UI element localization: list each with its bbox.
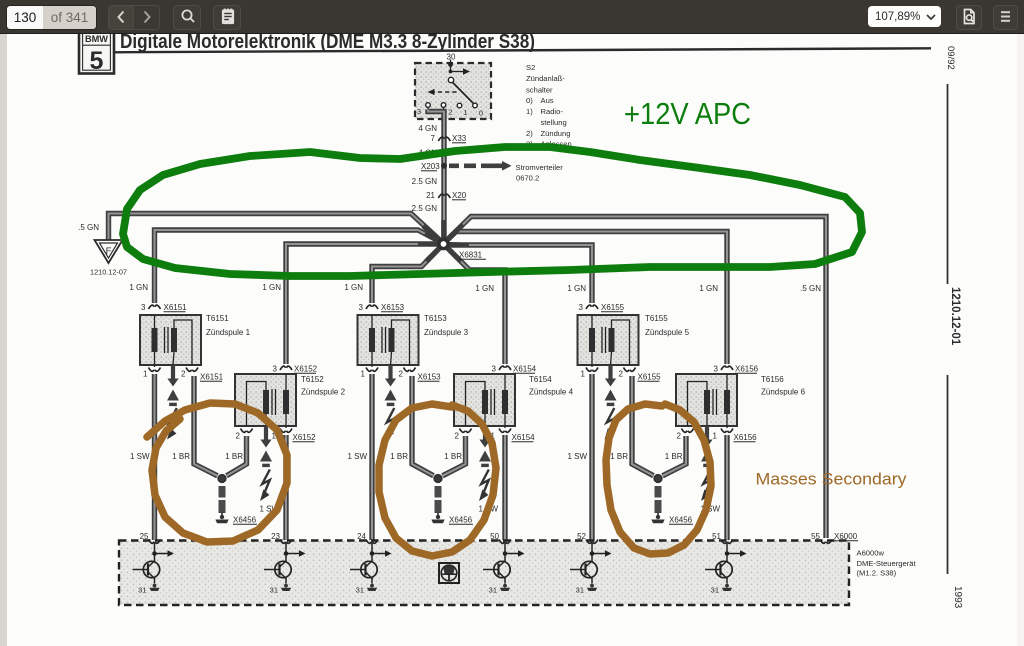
svg-text:(M1.2. S38): (M1.2. S38) (857, 569, 897, 578)
svg-text:X6156: X6156 (734, 433, 758, 442)
svg-text:1993: 1993 (952, 586, 963, 609)
svg-text:3: 3 (417, 107, 421, 116)
svg-text:1 SW: 1 SW (567, 452, 587, 461)
svg-text:1 BR: 1 BR (225, 452, 243, 461)
svg-text:31: 31 (576, 586, 584, 595)
svg-text:T6156: T6156 (761, 375, 784, 384)
svg-text:7: 7 (431, 134, 436, 143)
svg-text:2: 2 (619, 370, 624, 379)
svg-text:X6831: X6831 (459, 251, 483, 260)
svg-text:3: 3 (359, 303, 364, 312)
svg-text:Zündspule 6: Zündspule 6 (761, 388, 806, 397)
svg-text:1): 1) (526, 107, 533, 116)
svg-text:X6456: X6456 (449, 516, 473, 525)
svg-text:2: 2 (399, 370, 404, 379)
svg-text:24: 24 (357, 532, 366, 541)
svg-text:30: 30 (447, 53, 456, 62)
svg-text:1 BR: 1 BR (390, 452, 408, 461)
svg-text:2.5 GN: 2.5 GN (412, 204, 438, 213)
svg-text:T6151: T6151 (206, 314, 229, 323)
svg-text:1 GN: 1 GN (699, 284, 718, 293)
svg-text:Zündung: Zündung (541, 129, 571, 138)
svg-text:X6152: X6152 (294, 365, 318, 374)
svg-text:X6156: X6156 (735, 365, 759, 374)
svg-text:2: 2 (448, 108, 452, 117)
svg-text:Radio-: Radio- (541, 107, 564, 116)
svg-text:2): 2) (526, 129, 533, 138)
svg-text:1: 1 (143, 370, 148, 379)
svg-text:A6000w: A6000w (857, 549, 885, 558)
svg-text:1: 1 (361, 370, 366, 379)
svg-text:X20: X20 (452, 191, 467, 200)
svg-text:25: 25 (140, 532, 149, 541)
svg-text:1: 1 (581, 370, 586, 379)
svg-text:X6000: X6000 (834, 532, 858, 541)
svg-text:1: 1 (463, 108, 467, 117)
svg-text:2: 2 (181, 370, 186, 379)
svg-text:2: 2 (236, 432, 241, 441)
svg-text:X6152: X6152 (293, 433, 317, 442)
svg-text:X6155: X6155 (638, 373, 662, 382)
svg-text:X6456: X6456 (669, 516, 693, 525)
svg-text:stellung: stellung (541, 118, 567, 127)
svg-text:31: 31 (711, 586, 719, 595)
svg-text:S2: S2 (526, 63, 535, 72)
svg-text:Zündanlaß-: Zündanlaß- (526, 74, 565, 83)
svg-text:X6153: X6153 (381, 303, 405, 312)
svg-text:31: 31 (138, 586, 146, 595)
svg-text:T6155: T6155 (645, 314, 668, 323)
svg-text:0): 0) (526, 96, 533, 105)
svg-text:X6155: X6155 (601, 303, 625, 312)
svg-text:31: 31 (270, 586, 278, 595)
svg-text:1 BR: 1 BR (610, 452, 628, 461)
svg-text:3: 3 (714, 365, 719, 374)
svg-text:BMW: BMW (85, 34, 108, 44)
svg-text:X6456: X6456 (233, 516, 257, 525)
svg-text:T6154: T6154 (529, 375, 552, 384)
svg-text:1 SW: 1 SW (130, 452, 150, 461)
svg-text:1: 1 (713, 432, 718, 441)
svg-text:X6151: X6151 (200, 373, 224, 382)
svg-text:1 GN: 1 GN (129, 283, 148, 292)
svg-text:3: 3 (273, 365, 278, 374)
svg-text:09/92: 09/92 (945, 46, 956, 70)
svg-text:55: 55 (811, 532, 820, 541)
svg-text:0: 0 (479, 109, 483, 118)
svg-text:1 GN: 1 GN (475, 284, 494, 293)
svg-text:1 BR: 1 BR (665, 452, 683, 461)
svg-text:1 BR: 1 BR (172, 452, 190, 461)
svg-text:3: 3 (579, 303, 584, 312)
svg-text:31: 31 (489, 586, 497, 595)
svg-text:1210.12-01: 1210.12-01 (949, 287, 961, 346)
svg-text:X33: X33 (452, 134, 467, 143)
svg-text:51: 51 (712, 532, 721, 541)
svg-text:2: 2 (677, 432, 682, 441)
svg-text:1 GN: 1 GN (567, 284, 586, 293)
svg-text:X6154: X6154 (512, 433, 536, 442)
svg-text:2.5 GN: 2.5 GN (412, 177, 438, 186)
svg-text:DME-Steuergerät: DME-Steuergerät (857, 559, 917, 568)
svg-text:X6154: X6154 (513, 365, 537, 374)
svg-text:1 GN: 1 GN (262, 283, 281, 292)
svg-text:4 GN: 4 GN (418, 124, 437, 133)
svg-text:0670.2: 0670.2 (516, 174, 539, 183)
svg-text:52: 52 (577, 532, 586, 541)
svg-text:Zündspule 3: Zündspule 3 (424, 328, 469, 337)
svg-text:50: 50 (490, 532, 499, 541)
svg-text:Stromverteiler: Stromverteiler (516, 163, 564, 172)
svg-text:Zündspule 2: Zündspule 2 (301, 388, 346, 397)
svg-text:1 SW: 1 SW (347, 452, 367, 461)
svg-text:Masses Secondary: Masses Secondary (756, 471, 908, 489)
svg-text:3: 3 (492, 365, 497, 374)
svg-text:1 GN: 1 GN (344, 283, 363, 292)
svg-text:+12V APC: +12V APC (624, 96, 751, 131)
svg-text:23: 23 (271, 532, 280, 541)
svg-text:X6151: X6151 (164, 303, 188, 312)
svg-text:X203: X203 (421, 162, 440, 171)
svg-text:Zündspule 4: Zündspule 4 (529, 388, 574, 397)
svg-text:.5 GN: .5 GN (800, 284, 821, 293)
svg-text:Zündspule 5: Zündspule 5 (645, 328, 690, 337)
svg-text:X6153: X6153 (418, 373, 442, 382)
svg-text:Aus: Aus (541, 96, 554, 105)
svg-text:1210.12-07: 1210.12-07 (90, 268, 127, 277)
svg-text:T6152: T6152 (301, 375, 324, 384)
svg-text:2: 2 (455, 432, 460, 441)
svg-text:F: F (106, 246, 112, 257)
svg-text:3: 3 (141, 303, 146, 312)
svg-text:31: 31 (356, 586, 364, 595)
svg-text:.5 GN: .5 GN (78, 223, 99, 232)
svg-text:schalter: schalter (526, 86, 553, 95)
svg-text:5: 5 (90, 47, 104, 75)
svg-text:T6153: T6153 (424, 314, 447, 323)
svg-text:Zündspule 1: Zündspule 1 (206, 328, 251, 337)
svg-text:1 BR: 1 BR (444, 452, 462, 461)
svg-text:21: 21 (426, 191, 435, 200)
